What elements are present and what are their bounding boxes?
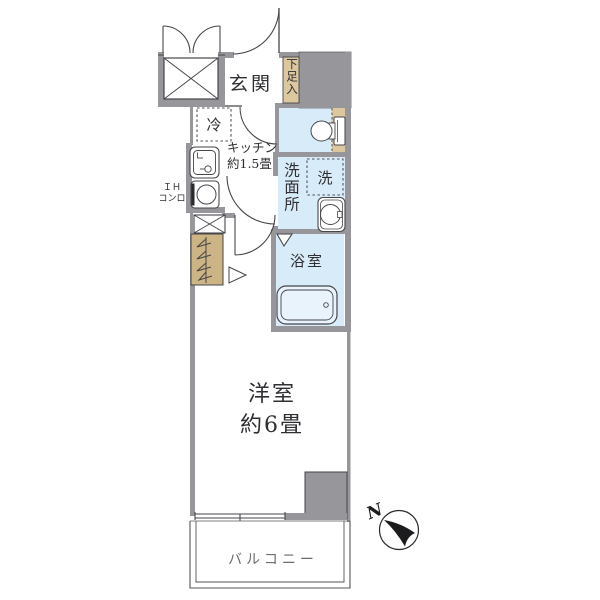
wall xyxy=(271,229,276,332)
washroom-label: 洗面所 xyxy=(282,162,300,224)
wall-block-bottom-right xyxy=(305,472,347,519)
ih-stove-icon xyxy=(191,181,219,208)
wall-left-lower xyxy=(190,284,195,516)
main-room-name: 洋室 xyxy=(218,379,326,410)
balcony-window xyxy=(195,512,285,521)
kitchen-sink-icon xyxy=(190,147,219,178)
kitchen-label: キッチン約1.5畳 xyxy=(227,140,277,172)
wall xyxy=(275,152,345,157)
balcony-label: バルコニー xyxy=(200,549,346,569)
main-room-label: 洋室約6畳 xyxy=(218,379,326,441)
closet-door-arrow-icon xyxy=(229,267,246,283)
wall xyxy=(283,52,299,57)
wall xyxy=(271,326,351,332)
floor-plan-drawing xyxy=(0,0,600,600)
wall xyxy=(190,105,193,145)
wall-right xyxy=(345,52,351,332)
bathtub-icon xyxy=(277,286,337,324)
floor-plan-page: 玄関 下足入 冷 キッチン約1.5畳 ＩＨコンロ 洗面所 洗 浴室 洋室約6畳 … xyxy=(0,0,600,600)
wall xyxy=(225,52,234,58)
shoe-cabinet-label: 下足入 xyxy=(284,58,299,104)
double-door-arc xyxy=(193,26,220,53)
kitchen-name: キッチン xyxy=(227,140,277,156)
wall-right-lower xyxy=(347,332,351,522)
room-door-arc xyxy=(235,215,275,255)
wall xyxy=(158,52,164,107)
bathroom-label: 浴室 xyxy=(286,250,328,271)
entrance-door-arc xyxy=(233,8,279,54)
wall-block-top-right xyxy=(299,52,351,108)
hall-door-arc xyxy=(240,107,277,144)
kitchen-size: 約1.5畳 xyxy=(227,156,277,172)
washing-machine-label: 洗 xyxy=(307,167,343,188)
wall xyxy=(285,513,347,520)
ih-stove-label: ＩＨコンロ xyxy=(154,183,190,205)
refrigerator-label: 冷 xyxy=(197,114,231,135)
double-door-arc xyxy=(163,26,190,53)
main-room-size: 約6畳 xyxy=(218,410,326,441)
genkan-label: 玄関 xyxy=(222,69,280,96)
stove-line1: ＩＨ xyxy=(154,183,190,194)
stove-line2: コンロ xyxy=(154,194,190,205)
washbasin-icon xyxy=(318,198,345,232)
